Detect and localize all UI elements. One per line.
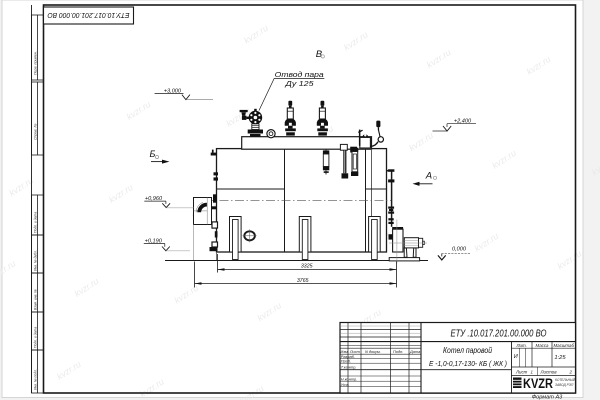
svg-text:В: В [316,49,323,60]
svg-text:3325: 3325 [301,263,313,269]
svg-text:Листов: Листов [540,370,558,375]
svg-text:Подп. и дата: Подп. и дата [33,327,37,348]
svg-text:Дата: Дата [409,349,421,354]
svg-text:Ду 125: Ду 125 [284,79,314,88]
svg-text:ЗАВОД РЭП: ЗАВОД РЭП [555,383,574,387]
svg-text:И: И [514,354,518,360]
svg-text:Лит.: Лит. [516,343,527,348]
svg-text:Взам. инв. №: Взам. инв. № [33,289,37,310]
svg-text:Масштаб: Масштаб [553,343,574,348]
svg-text:kvzr.ru: kvzr.ru [590,155,600,178]
svg-text:КОТЕЛЬНЫЙ: КОТЕЛЬНЫЙ [555,378,576,382]
svg-text:Утв.: Утв. [341,382,350,387]
svg-text:Перв. примен.: Перв. примен. [33,51,37,75]
svg-text:Котел паровой: Котел паровой [443,346,492,355]
svg-text:1:25: 1:25 [554,355,566,361]
svg-text:Инв. № дубл.: Инв. № дубл. [33,250,37,271]
svg-text:3765: 3765 [297,278,309,284]
svg-text:Инв. № подл.: Инв. № подл. [33,369,37,390]
svg-text:Масса: Масса [536,343,550,348]
svg-text:Т.контр.: Т.контр. [341,365,357,370]
svg-text:Е -1,0-0,17-130- КБ ( ЖК ): Е -1,0-0,17-130- КБ ( ЖК ) [429,361,507,368]
svg-text:А: А [425,171,432,182]
svg-text:ЕТУ.10.017.201.00.000 ВО: ЕТУ.10.017.201.00.000 ВО [47,11,130,18]
svg-text:ЕТУ .10.017.201.00.000 ВО: ЕТУ .10.017.201.00.000 ВО [451,327,547,339]
svg-text:Справ. №: Справ. № [33,124,37,140]
svg-text:Проб.: Проб. [341,359,351,364]
svg-text:0,000: 0,000 [452,247,467,253]
svg-text:Б: Б [150,149,156,159]
svg-text:Н.контр.: Н.контр. [341,377,357,382]
svg-text:Лист: Лист [515,370,528,375]
svg-text:KVZR: KVZR [523,376,553,391]
svg-text:Подп. и дата: Подп. и дата [33,212,37,233]
svg-text:2: 2 [569,370,573,375]
svg-text:Отвод пара: Отвод пара [275,70,324,79]
svg-text:Формат А3: Формат А3 [532,395,563,400]
svg-text:Подп.: Подп. [393,349,403,354]
svg-text:N докум.: N докум. [365,349,381,354]
